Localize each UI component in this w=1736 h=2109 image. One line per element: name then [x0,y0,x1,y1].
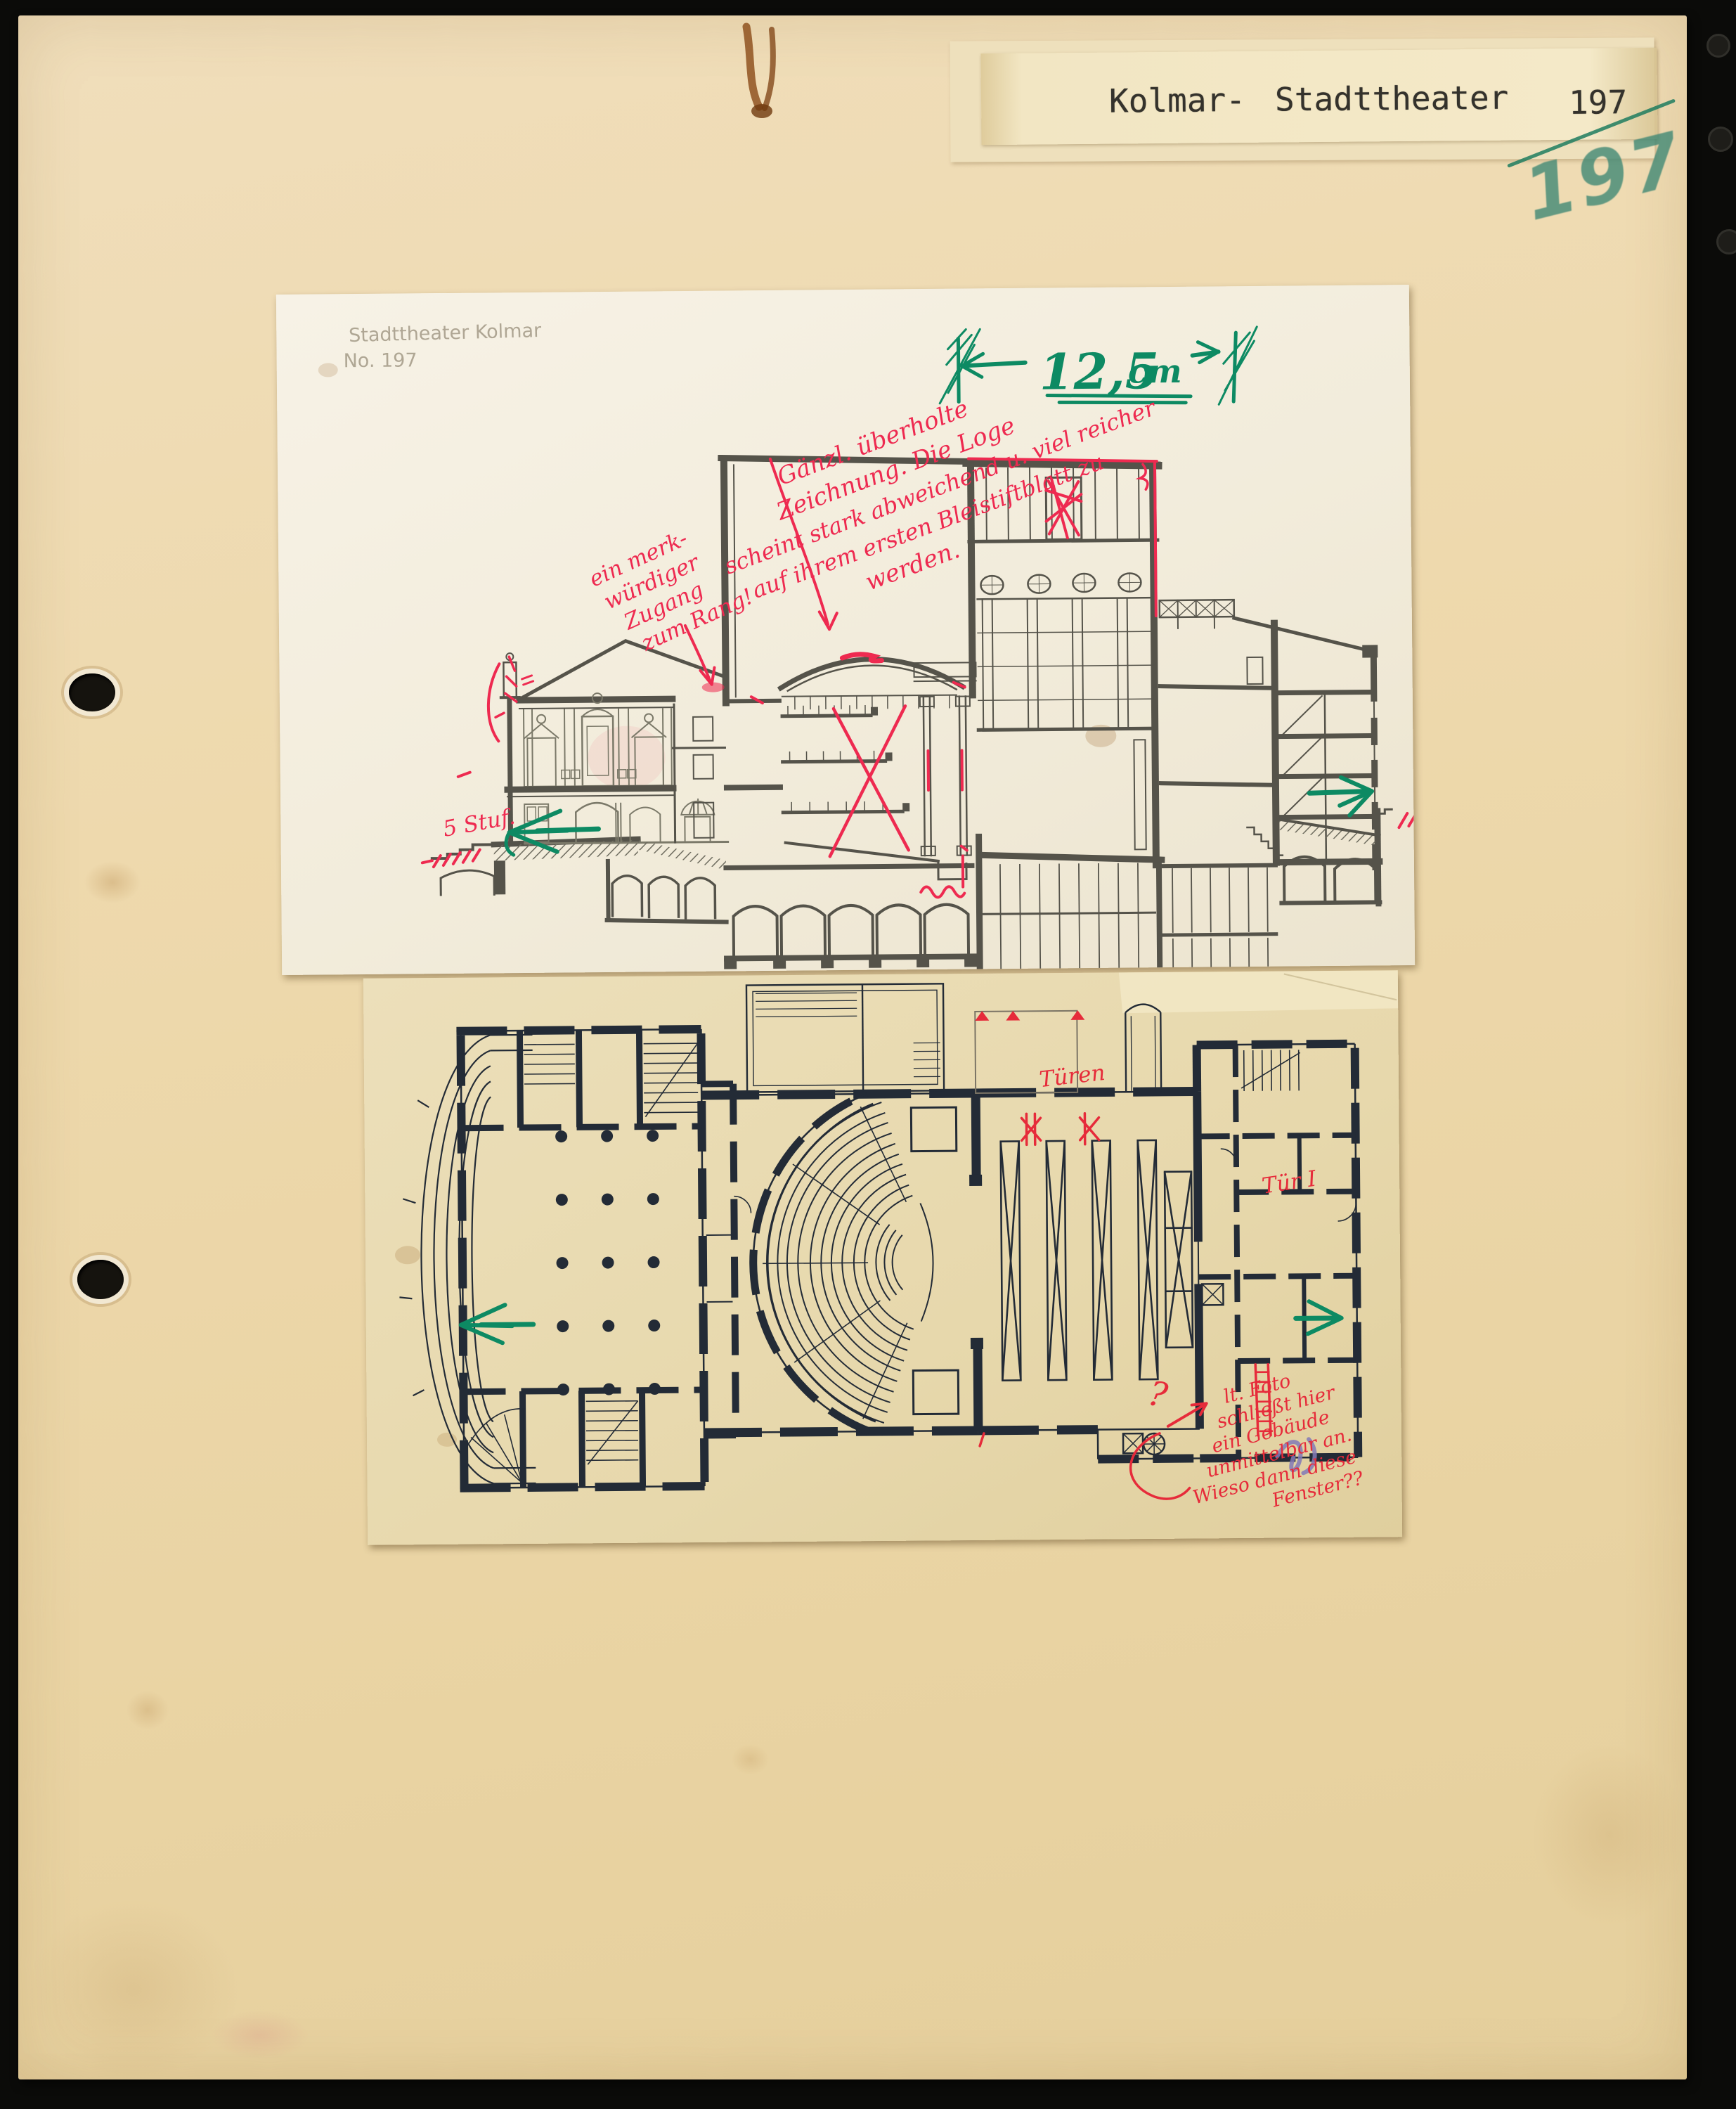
pink-smudge [588,725,666,789]
punch-hole-top [69,673,115,711]
sheet-foxing [318,363,338,377]
label-number-typed: 197 [1569,83,1628,122]
rust-stain [724,14,801,134]
pencil-note-line2: No. 197 [344,349,417,372]
label-title: Stadttheater [1275,79,1509,119]
label-city: Kolmar- [1109,81,1245,120]
scanned-album-page: Kolmar- Stadttheater 197 197 Stadttheate… [0,0,1736,2109]
punch-hole-bottom [77,1260,124,1299]
binder-ring-shadow [1708,127,1733,152]
plan-drawing: Türen Tür I ? lt. Foto schließt hier ein… [363,970,1402,1545]
binder-ring-shadow [1716,229,1736,254]
sheet-foxing [437,1433,457,1447]
sheet-foxing [395,1246,420,1264]
red-note-rang: ein merk- würdiger Zugang zum Rang! [585,511,758,666]
archive-label: Kolmar- Stadttheater 197 [980,48,1657,145]
binder-ring-shadow [1706,34,1730,58]
dimension-unit: cm [1128,352,1182,391]
section-drawing-sheet: Stadttheater Kolmar No. 197 [276,285,1415,975]
paper-flap [1119,970,1398,1013]
plan-drawing-sheet: Türen Tür I ? lt. Foto schließt hier ein… [363,970,1402,1545]
pencil-note-line1: Stadttheater Kolmar [349,320,543,347]
section-drawing: Stadttheater Kolmar No. 197 [276,285,1415,975]
